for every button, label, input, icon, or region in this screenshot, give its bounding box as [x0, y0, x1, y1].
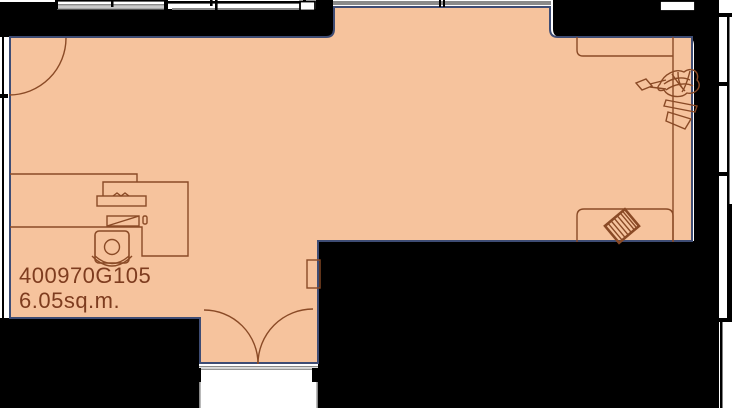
window2-glass-line [172, 8, 303, 10]
mullion-tick-5 [215, 0, 218, 12]
threshold-line1 [199, 366, 318, 367]
floorplan-canvas: 400970G105 6.05sq.m. [0, 0, 732, 408]
wall-bottom-left [0, 318, 199, 408]
right-margin [717, 0, 732, 408]
right-wall-block [727, 204, 732, 318]
corridor-jamb-right [312, 368, 320, 382]
room-area-label: 6.05sq.m. [19, 289, 120, 313]
floorplan-drawing [0, 0, 732, 408]
gap-window-bar [333, 1, 551, 5]
window-glass-line2 [57, 8, 166, 9]
corridor-jamb-left [194, 368, 201, 382]
wall-top-left [0, 9, 333, 37]
right-tick-mid1 [719, 82, 729, 86]
mullion-tick-1 [55, 0, 58, 9]
left-wall-line [2, 37, 4, 318]
left-door-jamb [0, 94, 8, 98]
window2-frame-line [168, 1, 309, 4]
office-chair [92, 231, 132, 266]
room-id-label: 400970G105 [19, 264, 151, 288]
right-band-break [719, 318, 732, 322]
chair-seat [95, 231, 129, 263]
wall-bottom-right [318, 241, 719, 408]
gap-mullion-a [439, 0, 441, 7]
mullion-tick-3 [164, 0, 168, 12]
gap-mullion-b [443, 0, 445, 7]
right-wall-line-low [720, 322, 723, 408]
right-tick-top [717, 13, 732, 17]
facade-bar [0, 2, 57, 9]
corridor-floor [199, 365, 318, 408]
right-tick-mid2 [719, 172, 729, 176]
window-fragment-right [660, 1, 695, 11]
mullion-tick-2 [111, 0, 114, 7]
window-notch [300, 2, 315, 11]
wall-top-left-riser [316, 0, 333, 12]
threshold-line2 [199, 369, 318, 370]
left-margin [0, 37, 8, 318]
corridor [194, 365, 320, 408]
mullion-tick-4 [210, 0, 213, 6]
